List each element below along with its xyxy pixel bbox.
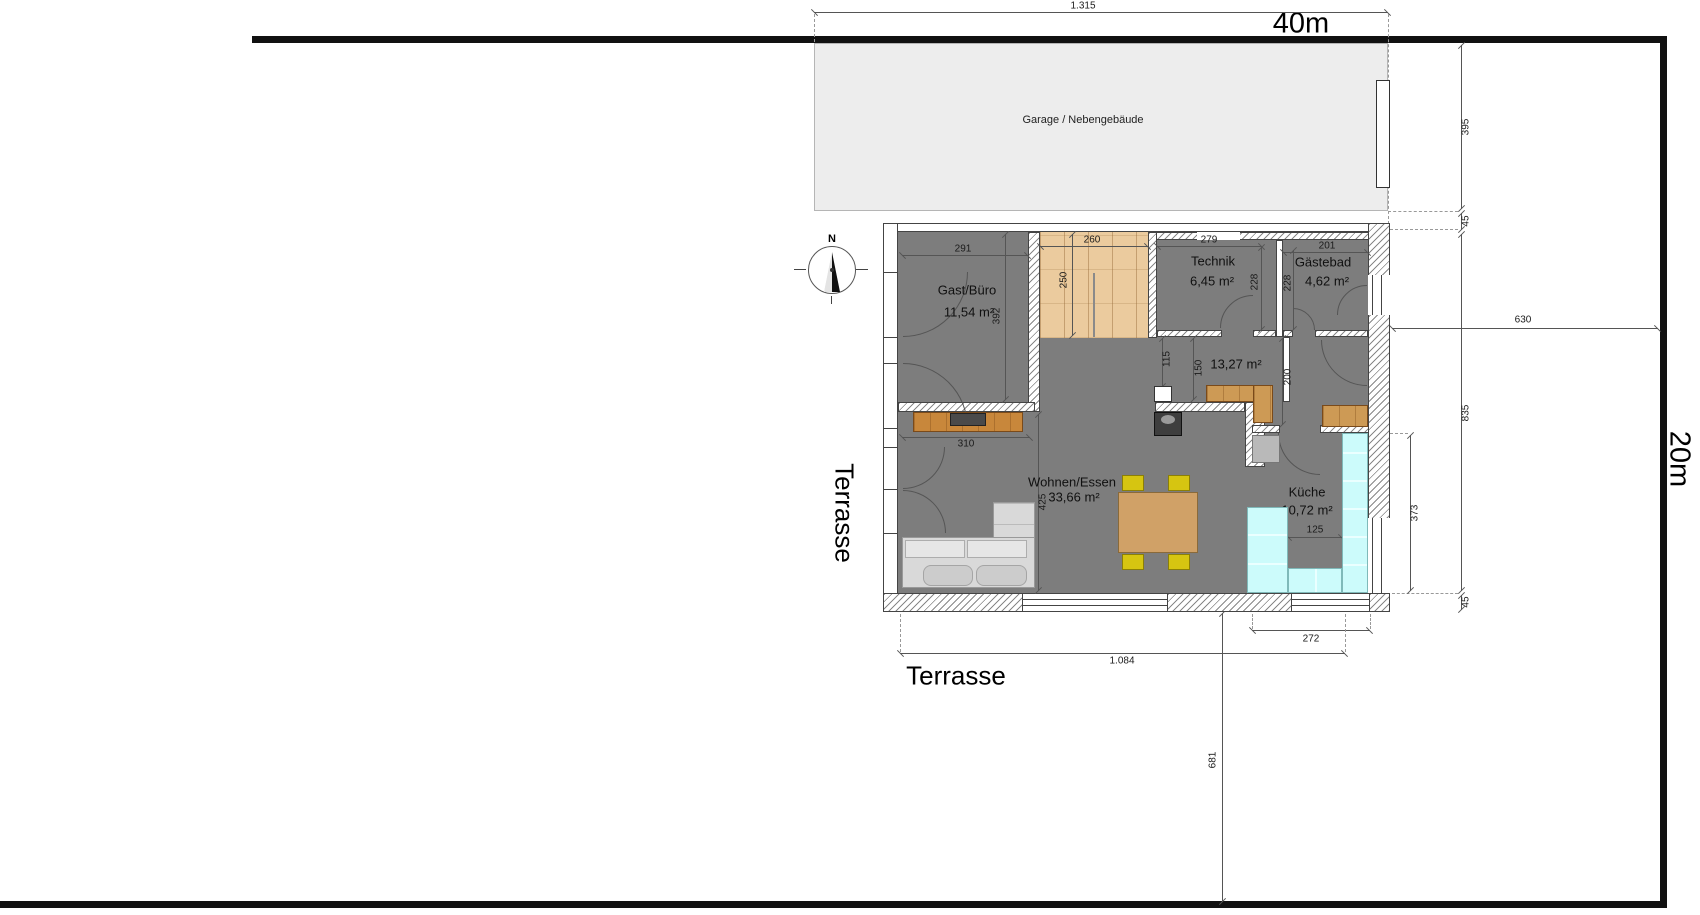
kitchen-counter-right — [1342, 433, 1368, 593]
dim-line-entry-width — [1040, 246, 1148, 247]
window-frame — [1292, 605, 1369, 606]
plot-depth-label: 20m — [1663, 431, 1696, 487]
dim-line-right-clearance — [1392, 328, 1658, 329]
dim-line-entry-depth — [1072, 234, 1073, 336]
dim-line-gaestebad-width — [1283, 252, 1368, 253]
compass-needle-icon — [824, 252, 832, 292]
window-frame — [1381, 275, 1382, 315]
window-frame — [1381, 518, 1382, 593]
kitchen-counter-left — [1247, 507, 1288, 593]
extension-line — [1392, 593, 1458, 594]
terrace-door-frame — [1023, 605, 1167, 606]
room-label-technik: Technik — [1191, 254, 1235, 269]
dim-counter: 125 — [1307, 525, 1324, 536]
dim-sideboard: 310 — [958, 439, 975, 450]
extension-line — [814, 14, 815, 42]
garage-door — [1376, 80, 1390, 188]
garage-label: Garage / Nebengebäude — [1022, 114, 1143, 126]
dining-table — [1118, 492, 1198, 553]
dim-line-kitchen-width — [1252, 630, 1370, 631]
wall-gaestebad-flur — [1315, 330, 1368, 337]
dining-chair — [1168, 475, 1190, 491]
kitchen-counter-bottom — [1288, 568, 1342, 593]
door-jamb — [883, 447, 898, 448]
compass-north-label: N — [828, 233, 836, 245]
dim-line-plot-top — [814, 12, 1388, 13]
dim-line-house-width — [900, 653, 1345, 654]
extension-line — [900, 614, 901, 652]
door-jamb — [883, 489, 898, 490]
dim-bottom-offset: 45 — [1461, 596, 1472, 607]
dim-line-gast-width — [902, 255, 1028, 256]
extension-line — [1252, 614, 1253, 629]
door-jamb — [883, 272, 898, 273]
dining-chair — [1168, 554, 1190, 570]
dining-chair — [1122, 554, 1144, 570]
dim-line-technik-depth — [1261, 247, 1262, 330]
dim-gast-width: 291 — [955, 244, 972, 255]
dim-gaestebad-depth: 228 — [1283, 275, 1294, 292]
dim-line-counter — [1288, 537, 1342, 538]
extension-line — [1388, 211, 1458, 212]
dim-plot-top: 1.315 — [1070, 1, 1095, 12]
garage-outline — [814, 43, 1388, 211]
room-label-gast: Gast/Büro — [938, 283, 997, 298]
dresser — [1322, 405, 1368, 427]
wall-exterior-left — [883, 223, 898, 612]
dim-kitchen-width: 272 — [1303, 634, 1320, 645]
dim-house-depth: 835 — [1461, 405, 1472, 422]
dim-bottom-clearance: 681 — [1208, 752, 1219, 769]
compass-tick — [856, 269, 868, 270]
dim-line-gast-depth — [1005, 234, 1006, 400]
window-frame — [1372, 518, 1373, 593]
terrace-left-label: Terrasse — [829, 463, 860, 563]
door-jamb — [883, 428, 898, 429]
room-area-wohnen: 33,66 m² — [1048, 490, 1099, 505]
dim-house-width: 1.084 — [1109, 656, 1134, 667]
wall-technik-flur — [1253, 330, 1276, 337]
extension-line — [1370, 614, 1371, 629]
dim-flur-a: 115 — [1162, 351, 1173, 367]
dim-technik-depth: 228 — [1250, 274, 1261, 291]
wall-exterior-top — [883, 223, 1390, 232]
kitchen-appliance — [1252, 435, 1280, 463]
room-area-gaestebad: 4,62 m² — [1305, 274, 1349, 289]
stove-top-icon — [1161, 415, 1175, 424]
sofa-back-cushion — [967, 540, 1027, 558]
wall-bottom-hatch — [1167, 593, 1292, 612]
room-label-kueche: Küche — [1289, 485, 1326, 500]
dim-gap-garage-house: 45 — [1461, 215, 1472, 226]
terrace-door-frame — [1023, 599, 1167, 600]
dim-garage-depth: 395 — [1461, 119, 1472, 136]
compass-center-dot — [830, 268, 834, 272]
compass-needle-icon — [832, 252, 840, 292]
window-frame — [1372, 275, 1373, 315]
dim-flur-b: 150 — [1194, 360, 1205, 377]
dim-flur-c: 200 — [1283, 369, 1294, 386]
room-area-gast: 11,54 m² — [944, 305, 994, 320]
room-area-kueche: 10,72 m² — [1281, 503, 1332, 518]
dim-right-clearance: 630 — [1515, 315, 1532, 326]
terrace-bottom-label: Terrasse — [906, 661, 1006, 692]
dim-gaestebad-width: 201 — [1319, 241, 1336, 252]
compass-tick — [831, 296, 832, 304]
dim-wohnen-depth: 425 — [1038, 494, 1049, 511]
window-frame — [1292, 599, 1369, 600]
sofa-back-cushion — [905, 540, 965, 558]
wall-flur-wohnen — [1155, 402, 1245, 412]
sofa-seat-cushion — [976, 565, 1027, 586]
floor-plan-canvas: 40m 20m 1.315 Garage / Nebengebäude 395 … — [0, 0, 1700, 915]
wall-bottom-hatch — [1369, 593, 1390, 612]
compass-tick — [794, 269, 806, 270]
door-jamb — [883, 337, 898, 338]
dim-line-bottom-clearance — [1222, 613, 1223, 902]
dim-line-technik-width — [1157, 246, 1262, 247]
door-jamb — [883, 533, 898, 534]
wall-technik-flur — [1157, 330, 1222, 337]
dining-chair — [1122, 475, 1144, 491]
extension-line — [1390, 229, 1458, 230]
entry-door-leaf — [1093, 273, 1095, 337]
dim-entry-width: 260 — [1084, 235, 1101, 246]
laptop — [950, 413, 986, 426]
room-label-wohnen: Wohnen/Essen — [1028, 475, 1116, 490]
door-jamb — [883, 363, 898, 364]
property-line-top — [252, 36, 1667, 43]
wall-exterior-top-hatch — [1148, 232, 1390, 240]
room-area-technik: 6,45 m² — [1190, 274, 1234, 289]
dim-kitchen-depth: 373 — [1410, 505, 1421, 522]
dim-entry-depth: 250 — [1059, 272, 1070, 289]
property-line-bottom — [0, 901, 1667, 908]
wall-kueche-top — [1252, 425, 1280, 433]
hall-sideboard — [1206, 385, 1254, 402]
dim-technik-width: 279 — [1201, 235, 1218, 246]
wall-bottom-hatch — [883, 593, 1023, 612]
hall-cabinet — [1253, 385, 1273, 423]
extension-line — [1345, 614, 1346, 652]
room-label-gaestebad: Gästebad — [1295, 255, 1351, 270]
room-area-flur: 13,27 m² — [1210, 357, 1261, 372]
utility-shaft — [1154, 386, 1172, 402]
sofa-seat-cushion — [923, 565, 973, 586]
